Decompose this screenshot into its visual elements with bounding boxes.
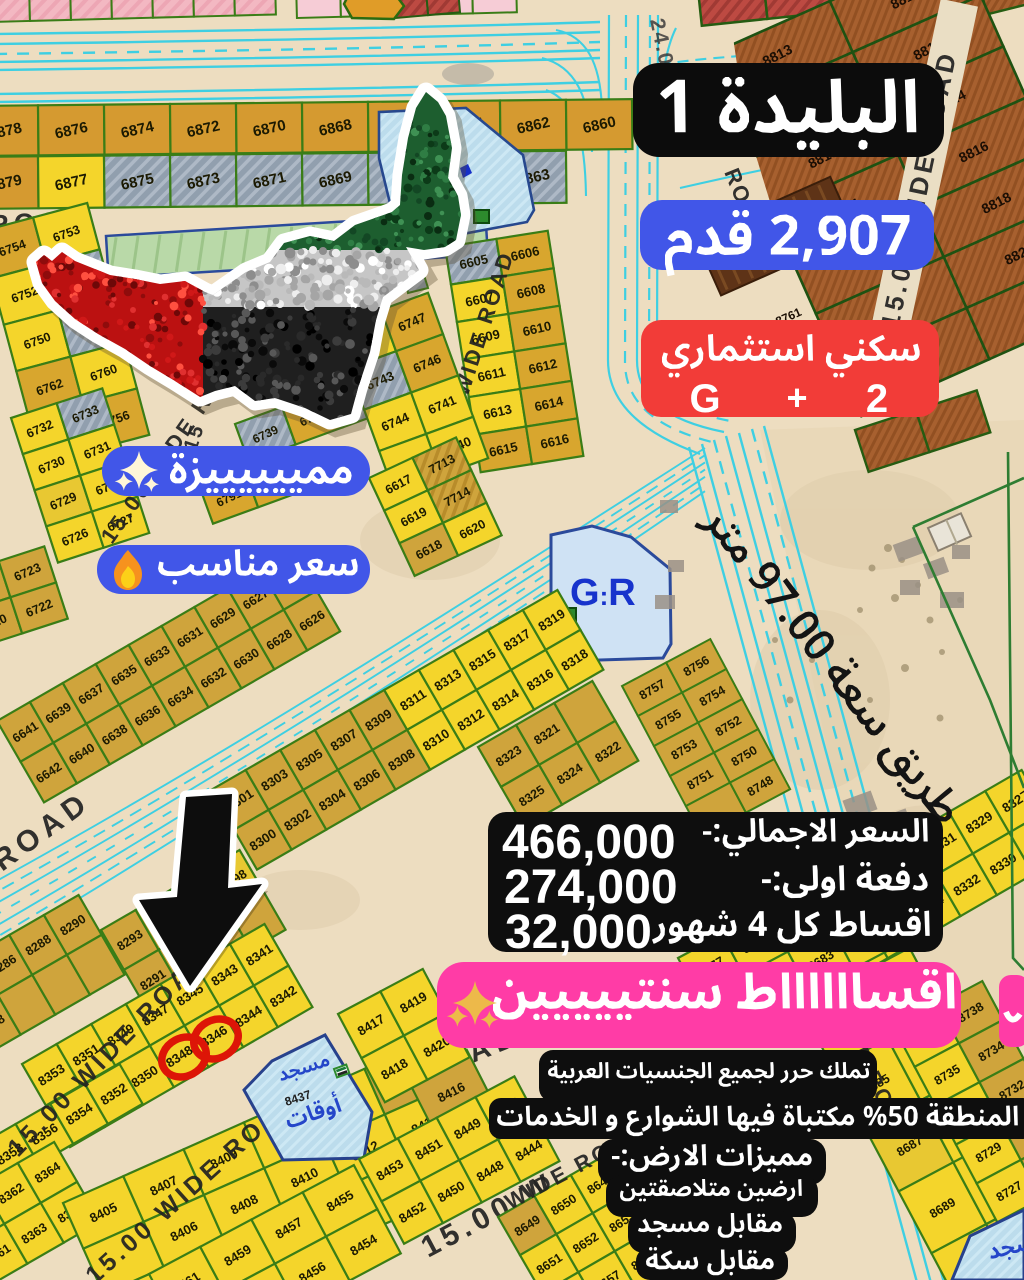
svg-text:2: 2 — [866, 377, 888, 421]
svg-text:+: + — [786, 377, 807, 418]
svg-text:32,000: 32,000 — [505, 906, 652, 959]
svg-text:G: G — [689, 377, 720, 421]
